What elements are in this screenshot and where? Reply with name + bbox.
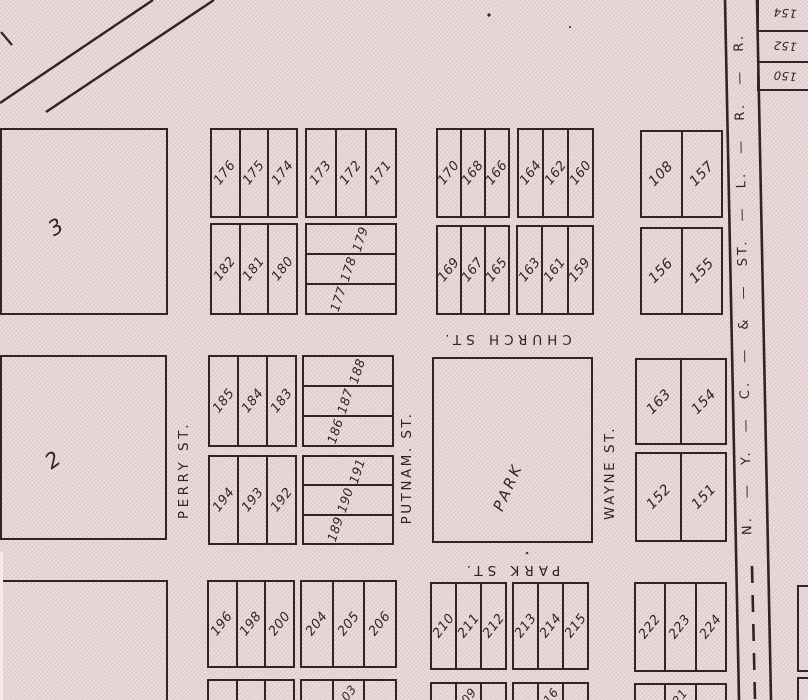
lot-block-partial: 16	[512, 682, 589, 700]
lot-number: 198	[237, 609, 265, 639]
lot-number: 163	[643, 386, 674, 417]
lot-block-151-152: 152 151	[635, 452, 727, 542]
lot-number: 210	[429, 611, 457, 641]
lot-number: 178	[337, 255, 359, 284]
lot-number: 188	[346, 357, 368, 386]
lot-block-partial: 21	[634, 683, 727, 700]
lot-number: 179	[349, 225, 371, 254]
lot-number: 190	[334, 486, 356, 515]
lot-number: 213	[511, 611, 539, 641]
lot-number: 163	[516, 255, 544, 285]
lot-block-east-of-railroad: 154 152 150	[757, 0, 808, 91]
lot-number: 186	[324, 417, 346, 446]
lot-number: 183	[267, 386, 295, 416]
street-label-wayne: WAYNE ST.	[602, 426, 618, 520]
lot-number: 170	[435, 158, 463, 188]
lot-number: 205	[334, 609, 362, 639]
lot-number: 206	[366, 609, 394, 639]
lot-number: 173	[307, 158, 335, 188]
lot-block-196: 196 198 200	[207, 580, 295, 668]
lot-block-156: 156 155	[640, 227, 723, 315]
lot-block-210: 210 211 212	[430, 582, 507, 670]
lot-block-partial: 09	[430, 682, 507, 700]
lot-number: 187	[334, 387, 356, 416]
street-label-park: PARK ST.	[462, 562, 561, 578]
lot-block-185: 185 184 183	[208, 355, 297, 447]
block-2-label: 2	[40, 446, 65, 474]
lot-number-fragment: 21	[670, 686, 691, 700]
lot-number: 211	[454, 611, 482, 641]
block-3: 3	[0, 128, 168, 315]
lot-block-163: 163 161 159	[516, 225, 594, 315]
lot-number: 169	[435, 255, 463, 285]
lot-number: 150	[773, 68, 797, 84]
lot-number: 204	[303, 609, 331, 639]
lot-block-176: 176 175 174	[210, 128, 298, 218]
lot-number: 168	[459, 158, 487, 188]
street-label-perry: PERRY ST.	[176, 421, 192, 519]
edge-mark	[1, 32, 12, 45]
lot-number: 214	[536, 611, 564, 641]
lot-number: 152	[643, 481, 674, 512]
lot-block-164: 164 162 160	[517, 128, 594, 218]
lot-number: 193	[238, 485, 266, 515]
lot-number: 159	[566, 255, 594, 285]
lot-block-170: 170 168 166	[436, 128, 510, 218]
lot-number: 108	[646, 158, 677, 189]
lot-number: 162	[541, 158, 569, 188]
lot-number: 156	[646, 255, 677, 286]
lot-number: 175	[240, 158, 268, 188]
lot-number: 154	[773, 6, 797, 22]
lot-block-158: 108 157	[640, 130, 723, 218]
plat-map: 3 2 PARK 176 175 174 173 172 171 170 168…	[0, 0, 808, 700]
lot-number: 161	[541, 255, 569, 285]
lot-block-222: 222 223 224	[634, 582, 727, 672]
lot-number: 180	[269, 254, 297, 284]
lot-number: 176	[211, 158, 239, 188]
lot-number: 171	[367, 158, 395, 188]
speck	[569, 26, 571, 28]
lot-block-182: 182 181 180	[210, 223, 298, 315]
lot-number: 165	[483, 255, 511, 285]
lot-block-partial	[207, 679, 295, 700]
railroad-rail-right	[757, 0, 771, 700]
railroad-centerline	[752, 566, 755, 700]
lot-number: 196	[208, 609, 236, 639]
lot-number-fragment: 16	[540, 685, 561, 700]
lot-number: 212	[479, 611, 507, 641]
lot-number: 215	[561, 611, 589, 641]
block-2: 2	[0, 355, 167, 540]
lot-number-fragment: 03	[338, 682, 359, 700]
block-3-label: 3	[44, 213, 68, 241]
lot-number: 191	[346, 456, 368, 485]
lot-block-163e-154: 163 154	[635, 358, 727, 445]
lot-block-177-179: 179 178 177	[305, 223, 397, 315]
lot-number: 172	[337, 158, 365, 188]
lot-number: 224	[697, 612, 725, 642]
lot-block-204: 204 205 206	[300, 580, 397, 668]
lot-number: 164	[516, 158, 544, 188]
lot-number: 223	[666, 612, 694, 642]
lot-number: 151	[688, 481, 719, 512]
scan-page-edge	[0, 552, 3, 700]
lot-block-213: 213 214 215	[512, 582, 589, 670]
speck	[526, 552, 529, 555]
lot-number: 184	[238, 386, 266, 416]
lot-number: 177	[327, 285, 349, 314]
block-bottom-left	[0, 580, 168, 700]
lot-number: 174	[269, 158, 297, 188]
lot-block-partial	[797, 677, 808, 700]
lot-block-189-191: 191 190 189	[302, 455, 394, 545]
street-label-church: CHURCH ST.	[440, 331, 572, 347]
lot-number: 160	[566, 158, 594, 188]
lot-number: 155	[686, 255, 717, 286]
lot-block-169: 169 167 165	[436, 225, 510, 315]
lot-number: 189	[324, 515, 346, 544]
lot-number: 166	[483, 158, 511, 188]
lot-number: 182	[211, 254, 239, 284]
street-label-putnam: PUTNAM. ST.	[399, 412, 415, 525]
lot-number: 181	[240, 254, 268, 284]
lot-number: 194	[209, 485, 237, 515]
lot-number: 192	[267, 485, 295, 515]
lot-number: 167	[459, 255, 487, 285]
lot-number-fragment: 09	[458, 685, 479, 700]
lot-number: 222	[636, 612, 664, 642]
lot-block-186-188: 188 187 186	[302, 355, 394, 447]
lot-number: 152	[773, 39, 797, 55]
speck	[487, 13, 490, 16]
lot-number: 200	[266, 609, 294, 639]
diagonal-road-line	[0, 0, 153, 103]
lot-number: 185	[209, 386, 237, 416]
lot-number: 157	[686, 158, 717, 189]
lot-block-194: 194 193 192	[208, 455, 297, 545]
lot-block-partial: 03	[300, 679, 397, 700]
park-block	[432, 357, 593, 543]
lot-number: 154	[688, 386, 719, 417]
lot-block-partial	[797, 585, 808, 672]
lot-block-173: 173 172 171	[305, 128, 397, 218]
